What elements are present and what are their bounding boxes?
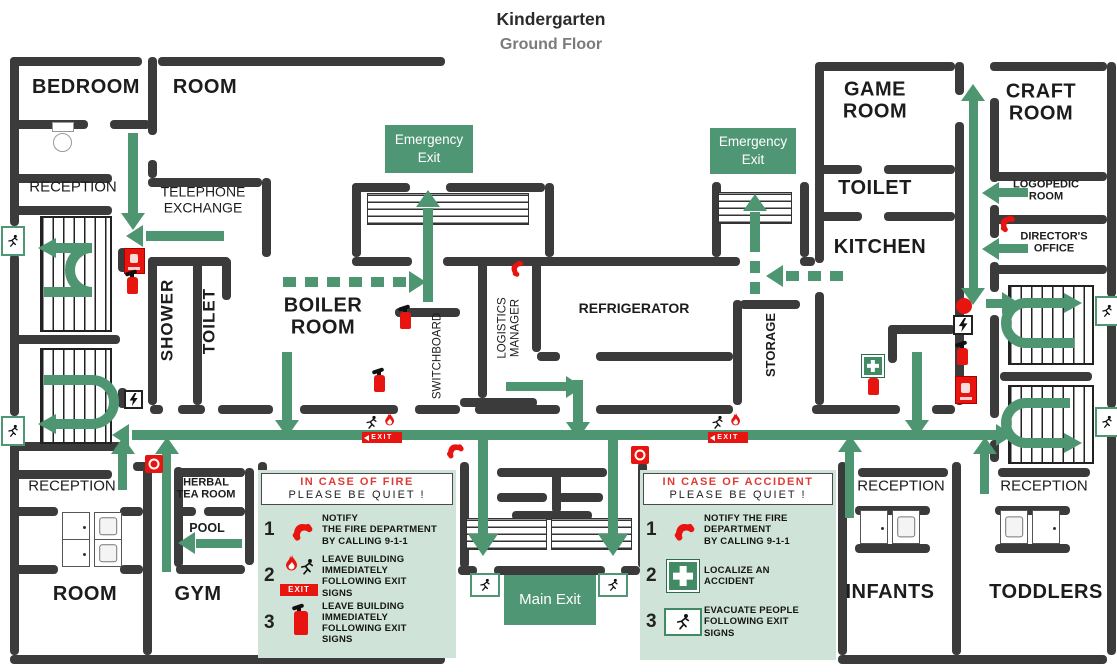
room-label-refrigerator: REFRIGERATOR — [579, 301, 690, 317]
fire-extinguisher-icon — [127, 277, 138, 294]
fire-panel-subtitle: PLEASE BE QUIET ! — [262, 489, 452, 501]
room-label-logistics-manager: LOGISTICS MANAGER — [496, 297, 521, 358]
accident-panel-header: IN CASE OF ACCIDENT PLEASE BE QUIET ! — [643, 473, 833, 505]
emergency-exit-sign-left: Emergency Exit — [385, 125, 473, 173]
room-label-shower: SHOWER — [159, 279, 178, 362]
running-man-icon — [710, 414, 725, 431]
room-label-infants: INFANTS — [845, 581, 934, 603]
running-man-icon — [674, 613, 692, 631]
exit-man-icon — [1095, 407, 1117, 437]
sink-icon — [94, 512, 122, 540]
accident-step-3: 3 EVACUATE PEOPLE FOLLOWING EXIT SIGNS — [646, 600, 832, 644]
running-man-icon — [298, 557, 316, 577]
fire-extinguisher-icon — [400, 312, 411, 329]
room-label-storage: STORAGE — [764, 313, 778, 377]
alarm-light-icon — [956, 298, 972, 314]
room-label-switchboard: SWITCHBOARD — [432, 313, 445, 399]
exit-steps — [367, 193, 529, 225]
emergency-exit-sign-right: Emergency Exit — [710, 128, 796, 174]
accident-panel-title: IN CASE OF ACCIDENT — [644, 476, 832, 488]
room-label-reception-top-left: RECEPTION — [29, 180, 117, 197]
exit-man-icon — [470, 573, 500, 597]
toilet-stall-icon — [1032, 510, 1060, 544]
phone-icon — [667, 514, 700, 545]
fire-instructions-panel: IN CASE OF FIRE PLEASE BE QUIET ! 1 NOTI… — [258, 470, 456, 658]
room-label-room-bottom: ROOM — [53, 583, 117, 605]
room-label-pool: POOL — [189, 521, 224, 535]
exit-label: EXIT — [708, 432, 748, 443]
fire-step-1: 1 NOTIFY THE FIRE DEPARTMENT BY CALLING … — [264, 508, 452, 552]
exit-man-icon — [1, 416, 25, 446]
phone-icon — [440, 436, 468, 463]
room-label-herbal-tea-room: HERBAL TEA ROOM — [177, 477, 236, 502]
room-label-game-room: GAME ROOM — [843, 79, 907, 124]
accident-panel-subtitle: PLEASE BE QUIET ! — [644, 489, 832, 501]
accident-step-1: 1 NOTIFY THE FIRE DEPARTMENT BY CALLING … — [646, 508, 832, 552]
fire-alarm-bell-icon — [145, 455, 163, 473]
stairs-u-turn-arrow — [20, 220, 140, 310]
room-label-gym: GYM — [174, 583, 221, 605]
fire-extinguisher-icon — [294, 611, 308, 635]
stairs-u-turn-arrow — [990, 283, 1100, 363]
fire-panel-header: IN CASE OF FIRE PLEASE BE QUIET ! — [261, 473, 453, 505]
first-aid-icon — [667, 560, 699, 592]
fire-panel-title: IN CASE OF FIRE — [262, 476, 452, 488]
stairs-u-turn-arrow — [990, 385, 1100, 465]
electrical-panel-icon — [953, 315, 973, 335]
toilet-stall-icon — [62, 539, 90, 567]
page-title: Kindergarten — [497, 10, 606, 30]
stairs-u-turn-arrow — [20, 358, 140, 448]
flame-icon — [728, 412, 744, 430]
room-label-toilet-right: TOILET — [838, 177, 912, 199]
first-aid-icon — [862, 355, 884, 377]
page-subtitle: Ground Floor — [500, 36, 602, 54]
exit-flame-sign: EXIT — [362, 414, 406, 443]
fire-step-3: 3 LEAVE BUILDING IMMEDIATELY FOLLOWING E… — [264, 601, 452, 646]
room-label-craft-room: CRAFT ROOM — [1006, 81, 1076, 126]
manual-call-point-icon — [955, 376, 977, 404]
room-label-directors-office: DIRECTOR'S OFFICE — [1020, 231, 1087, 256]
exit-label: EXIT — [280, 584, 318, 596]
sink-icon — [94, 539, 122, 567]
fire-step-2: 2 EXIT LEAVE BUILDING IMMEDIATELY FOLLOW… — [264, 554, 452, 599]
exit-flame-sign: EXIT — [708, 414, 752, 443]
exit-man-icon — [1095, 296, 1117, 326]
exit-label: EXIT — [362, 432, 402, 443]
room-label-reception-infants: RECEPTION — [857, 479, 945, 496]
room-label-kitchen: KITCHEN — [834, 236, 926, 258]
exit-man-icon — [598, 573, 628, 597]
toilet-icon — [52, 122, 74, 152]
room-label-boiler-room: BOILER ROOM — [284, 295, 363, 340]
phone-icon — [285, 514, 318, 545]
accident-step-2: 2 LOCALIZE AN ACCIDENT — [646, 554, 832, 598]
flame-icon — [382, 412, 398, 430]
room-label-toilet-left: TOILET — [201, 288, 220, 354]
sink-icon — [892, 510, 920, 544]
accident-instructions-panel: IN CASE OF ACCIDENT PLEASE BE QUIET ! 1 … — [640, 470, 836, 660]
room-label-bedroom: BEDROOM — [32, 76, 140, 98]
floor-plan: Kindergarten Ground Floor — [0, 0, 1117, 672]
main-exit-sign: Main Exit — [504, 575, 596, 625]
room-label-telephone-exchange: TELEPHONE EXCHANGE — [161, 184, 246, 215]
toilet-stall-icon — [62, 512, 90, 540]
fire-extinguisher-icon — [374, 375, 385, 392]
toilet-stall-icon — [860, 510, 888, 544]
sink-icon — [1000, 510, 1028, 544]
exit-man-icon — [1, 226, 25, 256]
exit-flame-icon: EXIT — [280, 554, 322, 598]
fire-alarm-bell-icon — [631, 446, 649, 464]
electrical-panel-icon — [124, 390, 143, 409]
running-man-icon — [364, 414, 379, 431]
fire-extinguisher-icon — [868, 378, 879, 395]
room-label-reception-bottom-left: RECEPTION — [28, 479, 116, 496]
room-label-room-top: ROOM — [173, 76, 237, 98]
room-label-toddlers: TODDLERS — [989, 581, 1103, 603]
room-label-logopedic-room: LOGOPEDIC ROOM — [1013, 179, 1079, 204]
exit-man-icon — [662, 600, 704, 644]
fire-extinguisher-icon — [957, 348, 968, 365]
room-label-reception-toddlers: RECEPTION — [1000, 479, 1088, 496]
